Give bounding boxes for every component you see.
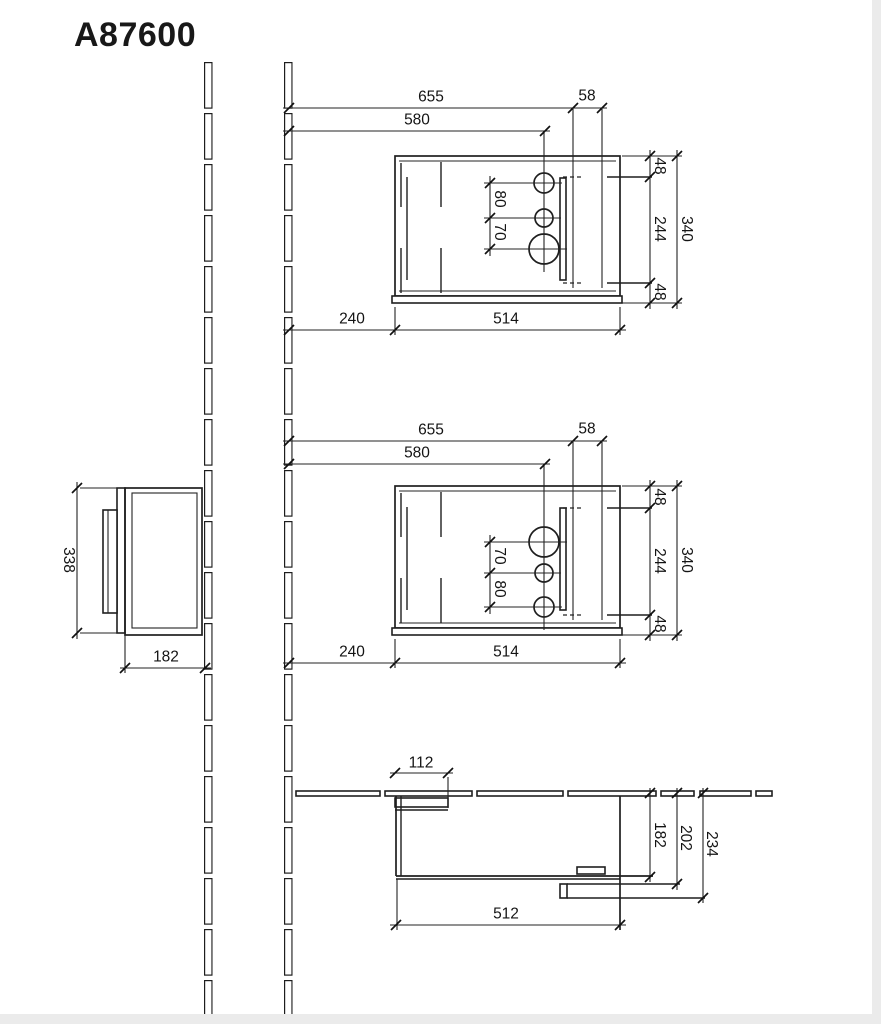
dim-label-80: 80 [491, 580, 507, 597]
dim-label-580: 580 [404, 112, 430, 128]
dim-bottom-widths [283, 639, 626, 668]
dim-label-80: 80 [491, 190, 507, 207]
drawing-sheet: A87600 [0, 0, 881, 1024]
dim-overall-width [283, 103, 607, 136]
dim-label-234: 234 [703, 831, 719, 857]
plan-view [296, 768, 772, 930]
mounting-slot [560, 508, 566, 610]
dim-label-70: 70 [491, 223, 507, 240]
front-view-middle [283, 436, 682, 668]
wall-section-column-right [284, 62, 293, 1014]
technical-drawing-canvas [0, 0, 881, 1024]
dim-label-512: 512 [493, 906, 519, 922]
dim-bottom-widths [283, 307, 626, 335]
dim-label-48-bottom: 48 [651, 283, 667, 300]
dim-label-112: 112 [409, 755, 434, 771]
wall-flap [395, 798, 448, 807]
dim-label-244: 244 [651, 216, 667, 242]
dim-label-202: 202 [677, 825, 693, 851]
dim-label-182: 182 [153, 649, 179, 665]
wall-section-column-left [204, 62, 213, 1014]
dim-height-chain [607, 150, 682, 309]
dim-label-70: 70 [491, 547, 507, 564]
dim-label-48-bottom: 48 [651, 615, 667, 632]
dim-label-580: 580 [404, 445, 430, 461]
mounting-slot [560, 178, 566, 280]
dim-height-chain [607, 480, 682, 641]
dim-label-182: 182 [651, 822, 667, 848]
dim-label-340: 340 [678, 216, 694, 242]
cabinet-plinth [392, 628, 622, 635]
scan-edge-bottom [0, 1014, 881, 1024]
front-view-upper [283, 103, 682, 335]
scan-edge-right [872, 0, 881, 1024]
dim-overall-width [283, 436, 607, 469]
carcass-outline [125, 488, 202, 635]
dim-label-655: 655 [418, 422, 444, 438]
handle-profile-plan [560, 884, 567, 898]
door-handle-profile [103, 510, 117, 613]
dim-hole-spacing [485, 176, 495, 256]
dim-label-240: 240 [339, 644, 365, 660]
dim-label-48-top: 48 [651, 488, 667, 505]
dim-label-655: 655 [418, 89, 444, 105]
side-view [72, 482, 211, 673]
dim-label-58: 58 [578, 88, 595, 104]
dim-label-514: 514 [493, 644, 519, 660]
dim-label-240: 240 [339, 311, 365, 327]
door-panel [117, 488, 125, 633]
cabinet-plinth [392, 296, 622, 303]
dim-label-514: 514 [493, 311, 519, 327]
dim-label-58: 58 [578, 421, 595, 437]
dim-label-340: 340 [678, 547, 694, 573]
dim-label-48-top: 48 [651, 157, 667, 174]
front-fitting [577, 867, 605, 874]
dim-label-244: 244 [651, 548, 667, 574]
dim-label-338: 338 [60, 547, 76, 573]
